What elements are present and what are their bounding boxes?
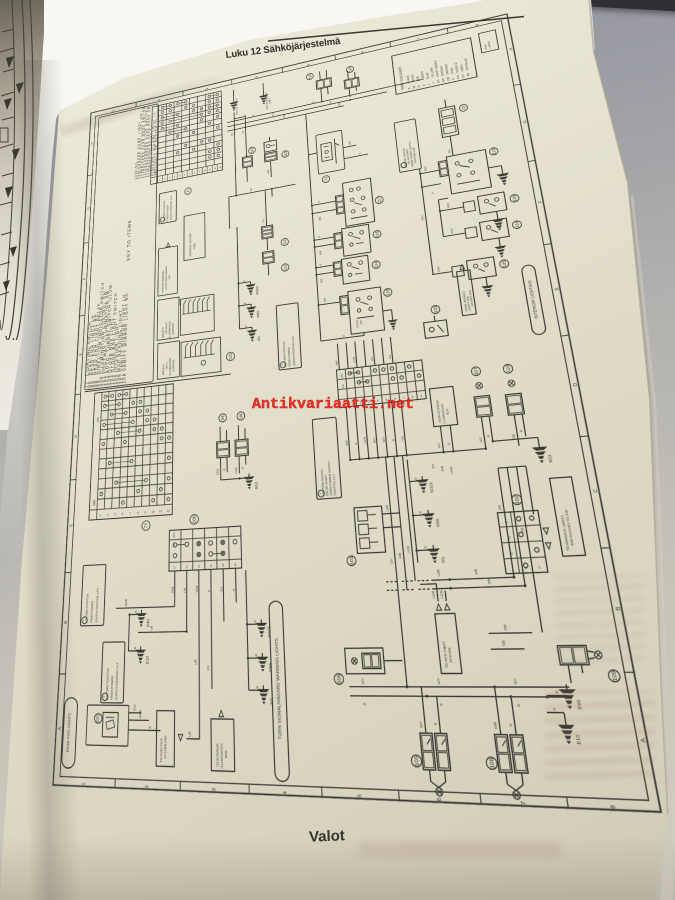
- svg-text:G/Y: G/Y: [480, 435, 484, 442]
- svg-text:A: A: [57, 727, 63, 731]
- svg-text:1: 1: [511, 568, 513, 572]
- svg-text:M1: M1: [257, 335, 261, 341]
- svg-text:B: B: [242, 466, 245, 469]
- svg-text:CONTROL: CONTROL: [173, 359, 176, 372]
- svg-text:R/W: R/W: [438, 266, 442, 272]
- svg-text:BATTERY POSITIVE: BATTERY POSITIVE: [162, 199, 166, 221]
- svg-text:OR/B: OR/B: [140, 709, 143, 719]
- svg-text:8: 8: [608, 804, 618, 809]
- svg-text:G/B: G/B: [441, 464, 445, 471]
- svg-text:S/B: S/B: [488, 577, 493, 584]
- svg-text:1: 1: [80, 782, 86, 786]
- svg-text:TURN SIGNAL/HAZARD WARNING LIG: TURN SIGNAL/HAZARD WARNING LIGHTS: [273, 638, 283, 740]
- svg-text:R/W: R/W: [447, 202, 451, 208]
- svg-text:6: 6: [235, 564, 238, 568]
- svg-text:TO INJECTION: TO INJECTION: [161, 736, 164, 762]
- svg-text:OR/L: OR/L: [172, 586, 175, 593]
- svg-text:B: B: [319, 235, 322, 238]
- svg-text:3: 3: [100, 515, 102, 518]
- svg-text:B: B: [520, 428, 524, 432]
- svg-text:SUPPLY ROUTING 1/F6: SUPPLY ROUTING 1/F6: [96, 588, 100, 623]
- svg-text:SUPPLY ROUTING 1/L4: SUPPLY ROUTING 1/L4: [170, 195, 173, 220]
- svg-text:B/R: B/R: [349, 140, 352, 145]
- svg-text:4: 4: [107, 514, 110, 517]
- svg-text:ILLUMINATION: ILLUMINATION: [168, 357, 172, 376]
- svg-text:1: 1: [174, 567, 177, 570]
- svg-text:F: F: [536, 200, 543, 204]
- svg-text:6: 6: [122, 513, 124, 516]
- svg-text:G/Y: G/Y: [391, 556, 395, 563]
- svg-text:OFF: OFF: [341, 373, 344, 378]
- svg-text:B: B: [255, 652, 258, 656]
- svg-text:3/J4: 3/J4: [169, 275, 172, 280]
- svg-text:B: B: [223, 467, 226, 470]
- svg-text:2: 2: [525, 567, 528, 571]
- svg-text:11: 11: [159, 511, 162, 514]
- svg-text:G/Y: G/Y: [437, 676, 442, 684]
- svg-text:B: B: [432, 191, 435, 194]
- svg-text:LG/B: LG/B: [440, 589, 445, 599]
- svg-text:SYSTEM: SYSTEM: [449, 647, 455, 663]
- svg-text:B: B: [509, 722, 514, 726]
- svg-text:B: B: [320, 262, 323, 265]
- svg-text:108: 108: [487, 757, 496, 769]
- svg-text:9: 9: [144, 512, 146, 515]
- svg-text:B: B: [135, 646, 138, 650]
- svg-text:TO INTERIOR: TO INTERIOR: [217, 742, 221, 767]
- svg-text:R/B: R/B: [321, 277, 324, 283]
- svg-text:M101: M101: [429, 481, 435, 493]
- svg-text:100: 100: [191, 515, 197, 524]
- svg-text:3: 3: [198, 566, 201, 570]
- svg-text:G/Y: G/Y: [514, 676, 519, 684]
- svg-text:C: C: [591, 489, 599, 493]
- svg-text:98: 98: [238, 413, 244, 419]
- svg-text:B: B: [434, 721, 438, 725]
- svg-text:TO/FROM WARNING: TO/FROM WARNING: [161, 270, 165, 293]
- svg-text:L6/B: L6/B: [437, 568, 441, 577]
- svg-text:1: 1: [159, 179, 160, 181]
- svg-text:OR/L: OR/L: [217, 468, 220, 475]
- svg-text:G/B: G/B: [512, 432, 517, 439]
- svg-text:F: F: [82, 277, 87, 280]
- svg-text:G/B: G/B: [475, 567, 480, 575]
- svg-text:C: C: [68, 523, 73, 527]
- svg-text:L/B: L/B: [189, 730, 192, 737]
- svg-text:R/L: R/L: [208, 665, 211, 670]
- svg-text:R/L: R/L: [221, 586, 224, 591]
- svg-text:M104: M104: [255, 285, 259, 295]
- svg-text:B/J3: B/J3: [446, 409, 450, 415]
- svg-text:5: 5: [114, 514, 116, 517]
- svg-text:B: B: [318, 200, 321, 203]
- svg-text:B13: B13: [547, 453, 554, 462]
- svg-text:G/Y: G/Y: [438, 441, 442, 448]
- svg-text:E: E: [78, 353, 83, 356]
- svg-text:B/W: B/W: [425, 166, 429, 171]
- svg-text:R/Y: R/Y: [263, 217, 266, 222]
- svg-text:S/B: S/B: [502, 639, 507, 647]
- svg-text:R/W: R/W: [422, 215, 426, 221]
- svg-text:R/B: R/B: [319, 215, 322, 220]
- svg-text:B: B: [487, 434, 491, 438]
- svg-text:SW: SW: [360, 320, 363, 325]
- svg-text:REAR FOG LIGHTS: REAR FOG LIGHTS: [66, 712, 72, 752]
- svg-text:13: 13: [219, 167, 222, 170]
- svg-text:R/L: R/L: [231, 132, 233, 136]
- svg-text:L6/B: L6/B: [386, 503, 390, 511]
- svg-text:2ND: 2ND: [94, 499, 97, 506]
- svg-text:SYSTEM 4/B2: SYSTEM 4/B2: [165, 736, 168, 759]
- svg-text:8: 8: [194, 172, 195, 175]
- svg-text:10: 10: [203, 170, 205, 173]
- svg-text:2: 2: [186, 567, 189, 571]
- svg-text:BATTERY POSITIVE: BATTERY POSITIVE: [105, 667, 110, 700]
- svg-text:M55: M55: [435, 517, 441, 527]
- svg-text:9: 9: [199, 171, 200, 174]
- svg-text:4: 4: [174, 176, 175, 179]
- svg-text:B: B: [256, 685, 259, 689]
- svg-text:OR/L: OR/L: [236, 467, 239, 474]
- svg-text:OR/B: OR/B: [126, 597, 129, 606]
- svg-text:L: L: [506, 521, 510, 523]
- svg-text:2: 2: [164, 178, 165, 181]
- svg-text:L/B: L/B: [195, 658, 198, 664]
- svg-text:B: B: [440, 702, 444, 706]
- svg-text:G/Y: G/Y: [362, 676, 366, 684]
- svg-text:D: D: [73, 434, 78, 438]
- svg-text:7: 7: [519, 800, 528, 805]
- svg-text:WITH: WITH: [166, 361, 169, 369]
- svg-text:11: 11: [209, 169, 211, 172]
- svg-text:3: 3: [538, 567, 541, 571]
- svg-text:7: 7: [129, 513, 131, 516]
- svg-text:DOOR: DOOR: [356, 319, 360, 328]
- svg-text:4: 4: [281, 790, 288, 795]
- svg-text:SUPPLY ROUTING 1/L6: SUPPLY ROUTING 1/L6: [292, 336, 296, 366]
- svg-text:LG/B: LG/B: [450, 465, 454, 474]
- svg-text:B/J3: B/J3: [225, 751, 228, 758]
- svg-text:L/B: L/B: [151, 624, 154, 630]
- svg-text:110: 110: [504, 364, 512, 373]
- svg-text:R: R: [511, 551, 515, 555]
- svg-text:R/W: R/W: [451, 228, 455, 234]
- svg-text:M55: M55: [256, 310, 260, 318]
- svg-text:121: 121: [228, 352, 234, 360]
- svg-text:77: 77: [143, 522, 149, 528]
- svg-text:ON: ON: [342, 383, 345, 388]
- svg-text:MODELS: MODELS: [162, 326, 165, 338]
- svg-text:BATTERY POSITIVE: BATTERY POSITIVE: [282, 340, 288, 367]
- svg-text:R/B: R/B: [320, 249, 323, 254]
- svg-text:FROM POWER: FROM POWER: [91, 600, 95, 623]
- svg-text:FROM POWER: FROM POWER: [111, 675, 115, 700]
- svg-text:7: 7: [189, 173, 190, 176]
- svg-text:G: G: [86, 206, 91, 210]
- svg-text:12: 12: [167, 510, 170, 513]
- svg-text:B13: B13: [254, 481, 259, 489]
- svg-text:B: B: [208, 588, 211, 592]
- svg-text:R: R: [233, 587, 236, 591]
- svg-text:B: B: [135, 609, 138, 613]
- svg-text:B: B: [359, 152, 362, 155]
- svg-text:B: B: [364, 701, 368, 705]
- svg-text:B: B: [255, 619, 258, 623]
- svg-text:106: 106: [335, 673, 343, 683]
- svg-text:B: B: [343, 333, 346, 336]
- svg-text:BATTERY POSITIVE: BATTERY POSITIVE: [84, 592, 89, 623]
- svg-text:S/B: S/B: [498, 503, 503, 510]
- svg-text:KEY TO ITEMS: KEY TO ITEMS: [126, 219, 132, 261]
- svg-text:S/B: S/B: [504, 623, 509, 631]
- svg-text:2: 2: [144, 784, 150, 788]
- svg-text:G/B: G/B: [494, 720, 499, 729]
- svg-text:R/L: R/L: [448, 149, 451, 153]
- svg-text:WITHOUT: WITHOUT: [166, 321, 169, 334]
- svg-text:102: 102: [512, 494, 521, 504]
- svg-text:101: 101: [94, 713, 100, 722]
- svg-text:ROUTING 1/L7: ROUTING 1/L7: [333, 474, 338, 496]
- svg-text:R/W: R/W: [268, 169, 271, 174]
- svg-text:12: 12: [214, 168, 216, 171]
- svg-text:B: B: [245, 301, 248, 304]
- svg-text:B: B: [415, 476, 419, 480]
- svg-text:M1: M1: [441, 555, 447, 563]
- svg-text:R/L: R/L: [250, 187, 253, 191]
- svg-text:N: N: [508, 535, 512, 539]
- svg-text:B: B: [517, 702, 522, 706]
- svg-text:R/L: R/L: [389, 354, 393, 359]
- svg-text:E: E: [553, 287, 560, 291]
- svg-text:LG/B: LG/B: [432, 589, 437, 598]
- svg-text:OFF: OFF: [97, 416, 100, 423]
- svg-text:INTERIOR LIGHTING: INTERIOR LIGHTING: [190, 232, 192, 256]
- svg-text:FROM POWER: FROM POWER: [167, 204, 170, 221]
- svg-text:99: 99: [220, 415, 226, 421]
- svg-text:B: B: [448, 441, 452, 445]
- svg-text:6: 6: [184, 174, 185, 177]
- svg-text:R/W: R/W: [134, 704, 137, 711]
- svg-text:E: E: [186, 189, 191, 192]
- svg-text:R/B: R/B: [324, 297, 327, 303]
- svg-text:H: H: [90, 142, 94, 145]
- svg-text:FEED: FEED: [194, 242, 197, 250]
- svg-text:CONTROL: CONTROL: [172, 322, 175, 335]
- svg-text:OFF: OFF: [173, 532, 176, 538]
- svg-text:G/B: G/B: [399, 551, 403, 558]
- svg-text:ROUTING 1/B5: ROUTING 1/B5: [413, 147, 418, 163]
- svg-text:E40: E40: [146, 618, 150, 627]
- svg-text:4: 4: [210, 566, 213, 570]
- svg-text:B: B: [420, 510, 424, 514]
- svg-text:B: B: [424, 545, 428, 549]
- svg-text:5: 5: [222, 565, 225, 569]
- svg-text:B: B: [63, 621, 69, 624]
- svg-text:B: B: [244, 279, 247, 282]
- svg-text:3: 3: [169, 177, 170, 180]
- svg-text:LG/B: LG/B: [407, 544, 411, 553]
- svg-text:B: B: [245, 324, 248, 327]
- svg-text:9: 9: [421, 395, 423, 398]
- svg-text:6: 6: [435, 797, 443, 802]
- svg-text:105: 105: [412, 755, 421, 766]
- svg-text:107: 107: [472, 366, 480, 375]
- svg-text:G/Y: G/Y: [432, 462, 436, 469]
- svg-text:E10: E10: [146, 655, 151, 664]
- svg-text:R/L: R/L: [402, 435, 406, 440]
- svg-text:R/L: R/L: [243, 130, 246, 134]
- svg-text:D: D: [571, 383, 579, 387]
- svg-text:FROM POWER: FROM POWER: [288, 346, 292, 366]
- svg-text:B: B: [149, 725, 152, 729]
- svg-text:10: 10: [151, 511, 154, 514]
- svg-text:5: 5: [179, 175, 180, 178]
- svg-text:8: 8: [137, 512, 139, 515]
- svg-text:SUPPLY ROUTING 1/L1: SUPPLY ROUTING 1/L1: [116, 663, 120, 700]
- svg-text:G/Y: G/Y: [420, 719, 425, 727]
- svg-text:L/B: L/B: [184, 587, 187, 593]
- svg-text:MODELS: MODELS: [163, 363, 166, 375]
- svg-text:3: 3: [211, 787, 218, 791]
- svg-text:108: 108: [122, 372, 127, 384]
- svg-text:OR/L: OR/L: [196, 585, 199, 592]
- svg-text:73: 73: [323, 176, 329, 181]
- svg-text:103: 103: [348, 556, 355, 566]
- svg-text:5: 5: [356, 793, 364, 798]
